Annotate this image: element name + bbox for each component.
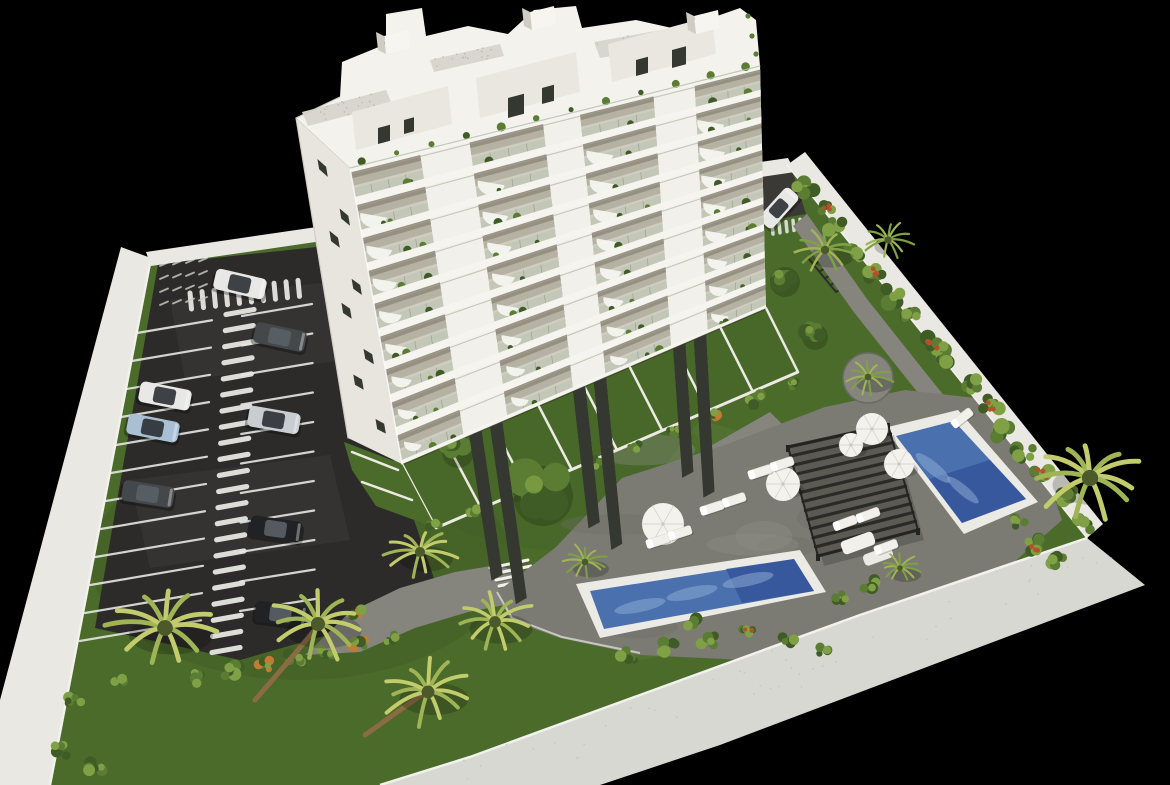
rendering-stage [0, 0, 1170, 785]
leafy-tree [770, 267, 800, 297]
scene-rendering [0, 0, 1170, 785]
